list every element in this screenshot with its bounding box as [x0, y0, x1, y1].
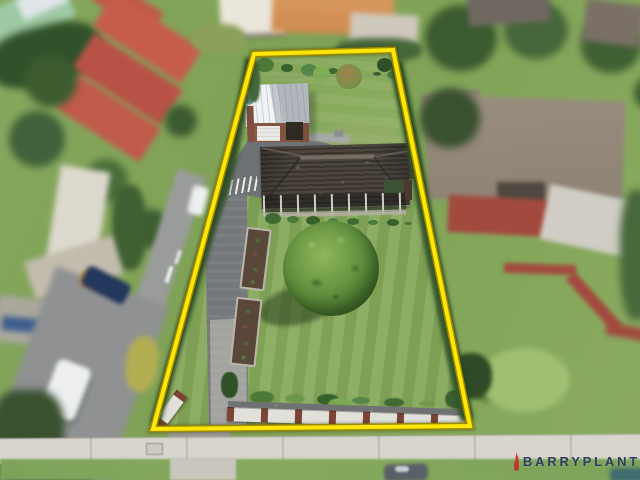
brand-name: BARRYPLANT: [523, 454, 640, 469]
boundary-overlay: [0, 0, 640, 480]
aerial-property-photo: BARRYPLANT: [0, 0, 640, 480]
boundary-rim: [153, 50, 470, 429]
agency-watermark: BARRYPLANT: [514, 449, 640, 473]
brand-flame-icon: [514, 452, 519, 471]
